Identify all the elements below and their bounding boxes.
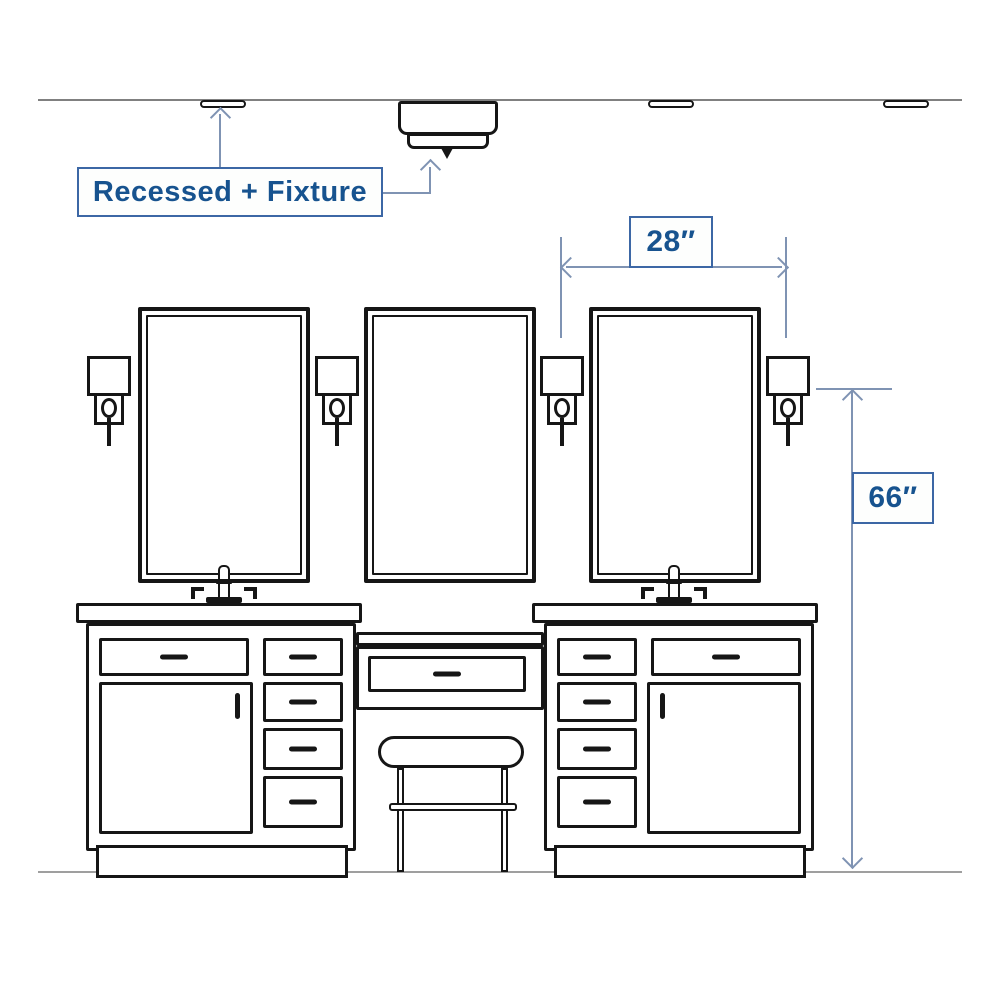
bridge-drawer-frame — [356, 646, 544, 710]
drawer-handle — [583, 800, 611, 805]
bridge-top-rail — [356, 632, 544, 646]
drawer — [651, 638, 801, 676]
drawer — [263, 776, 343, 828]
recessed-light-icon — [648, 100, 694, 108]
faucet-handle — [191, 587, 204, 591]
sconce-3 — [540, 356, 584, 448]
drawer — [557, 776, 637, 828]
countertop-left — [76, 603, 362, 623]
mirror-center — [364, 307, 536, 583]
mirror-inner-frame — [597, 315, 753, 575]
dim-28-extension-line-left — [560, 237, 562, 338]
door-handle — [660, 693, 665, 719]
countertop-right — [532, 603, 818, 623]
stool-leg — [397, 768, 404, 872]
sconce-1 — [87, 356, 131, 448]
drawer — [557, 638, 637, 676]
toe-kick-left — [96, 845, 348, 878]
dim-66-dimension-line — [851, 391, 853, 868]
sconce-bulb-icon — [554, 398, 570, 418]
cabinet-door — [647, 682, 801, 834]
callout-label-text: Recessed + Fixture — [93, 176, 367, 209]
toe-kick-right — [554, 845, 806, 878]
recessed-light-icon — [883, 100, 929, 108]
ceiling-line — [38, 99, 962, 101]
drawer-handle — [433, 672, 461, 677]
faucet-handle — [694, 587, 707, 591]
sconce-stem — [786, 418, 790, 446]
stool-leg — [501, 768, 508, 872]
mirror-right — [589, 307, 761, 583]
faucet-collar — [666, 579, 682, 584]
drawer-handle — [583, 747, 611, 752]
sconce-stem — [107, 418, 111, 446]
door-handle — [235, 693, 240, 719]
faucet-handle — [244, 587, 257, 591]
drawer-handle — [712, 655, 740, 660]
callout-label-box: Recessed + Fixture — [77, 167, 383, 217]
drawer-handle — [583, 655, 611, 660]
stool-stretcher — [389, 803, 517, 811]
drawer-handle — [289, 800, 317, 805]
cabinet-door — [99, 682, 253, 834]
drawer — [557, 728, 637, 770]
arrow-left-icon — [560, 257, 581, 278]
sconce-shade — [315, 356, 359, 396]
drawer — [99, 638, 249, 676]
sconce-bulb-icon — [101, 398, 117, 418]
sconce-stem — [335, 418, 339, 446]
drawer — [263, 638, 343, 676]
drawer-handle — [289, 700, 317, 705]
mirror-left — [138, 307, 310, 583]
faucet-collar — [216, 579, 232, 584]
drawer-handle — [160, 655, 188, 660]
ceiling-fixture-body — [398, 101, 498, 135]
mirror-inner-frame — [146, 315, 302, 575]
dim-28-extension-line-right — [785, 237, 787, 338]
sconce-4 — [766, 356, 810, 448]
dim-66-label-box: 66″ — [852, 472, 934, 524]
ceiling-fixture-lens — [407, 133, 489, 149]
drawer-handle — [289, 747, 317, 752]
arrow-up-icon — [842, 389, 863, 410]
bathroom-lighting-diagram: Recessed + Fixture 28″ 66″ — [0, 0, 1000, 1000]
sconce-2 — [315, 356, 359, 448]
drawer-handle — [289, 655, 317, 660]
callout-elbow-line-horizontal — [383, 192, 431, 194]
arrow-up-icon — [420, 159, 441, 180]
arrow-down-icon — [842, 848, 863, 869]
vanity-cabinet-right — [544, 623, 814, 851]
vanity-cabinet-left — [86, 623, 356, 851]
recessed-light-icon — [200, 100, 246, 108]
drawer — [263, 682, 343, 722]
drawer — [368, 656, 526, 692]
sconce-shade — [87, 356, 131, 396]
ceiling-fixture-finial — [441, 148, 453, 159]
sconce-stem — [560, 418, 564, 446]
sconce-bulb-icon — [329, 398, 345, 418]
faucet-handle — [641, 587, 654, 591]
dim-28-label-text: 28″ — [646, 225, 695, 259]
mirror-inner-frame — [372, 315, 528, 575]
arrow-up-icon — [210, 107, 231, 128]
sconce-shade — [766, 356, 810, 396]
drawer-handle — [583, 700, 611, 705]
dim-66-label-text: 66″ — [868, 481, 917, 515]
drawer — [557, 682, 637, 722]
drawer — [263, 728, 343, 770]
stool-seat — [378, 736, 524, 768]
sconce-bulb-icon — [780, 398, 796, 418]
sconce-shade — [540, 356, 584, 396]
dim-28-label-box: 28″ — [629, 216, 713, 268]
